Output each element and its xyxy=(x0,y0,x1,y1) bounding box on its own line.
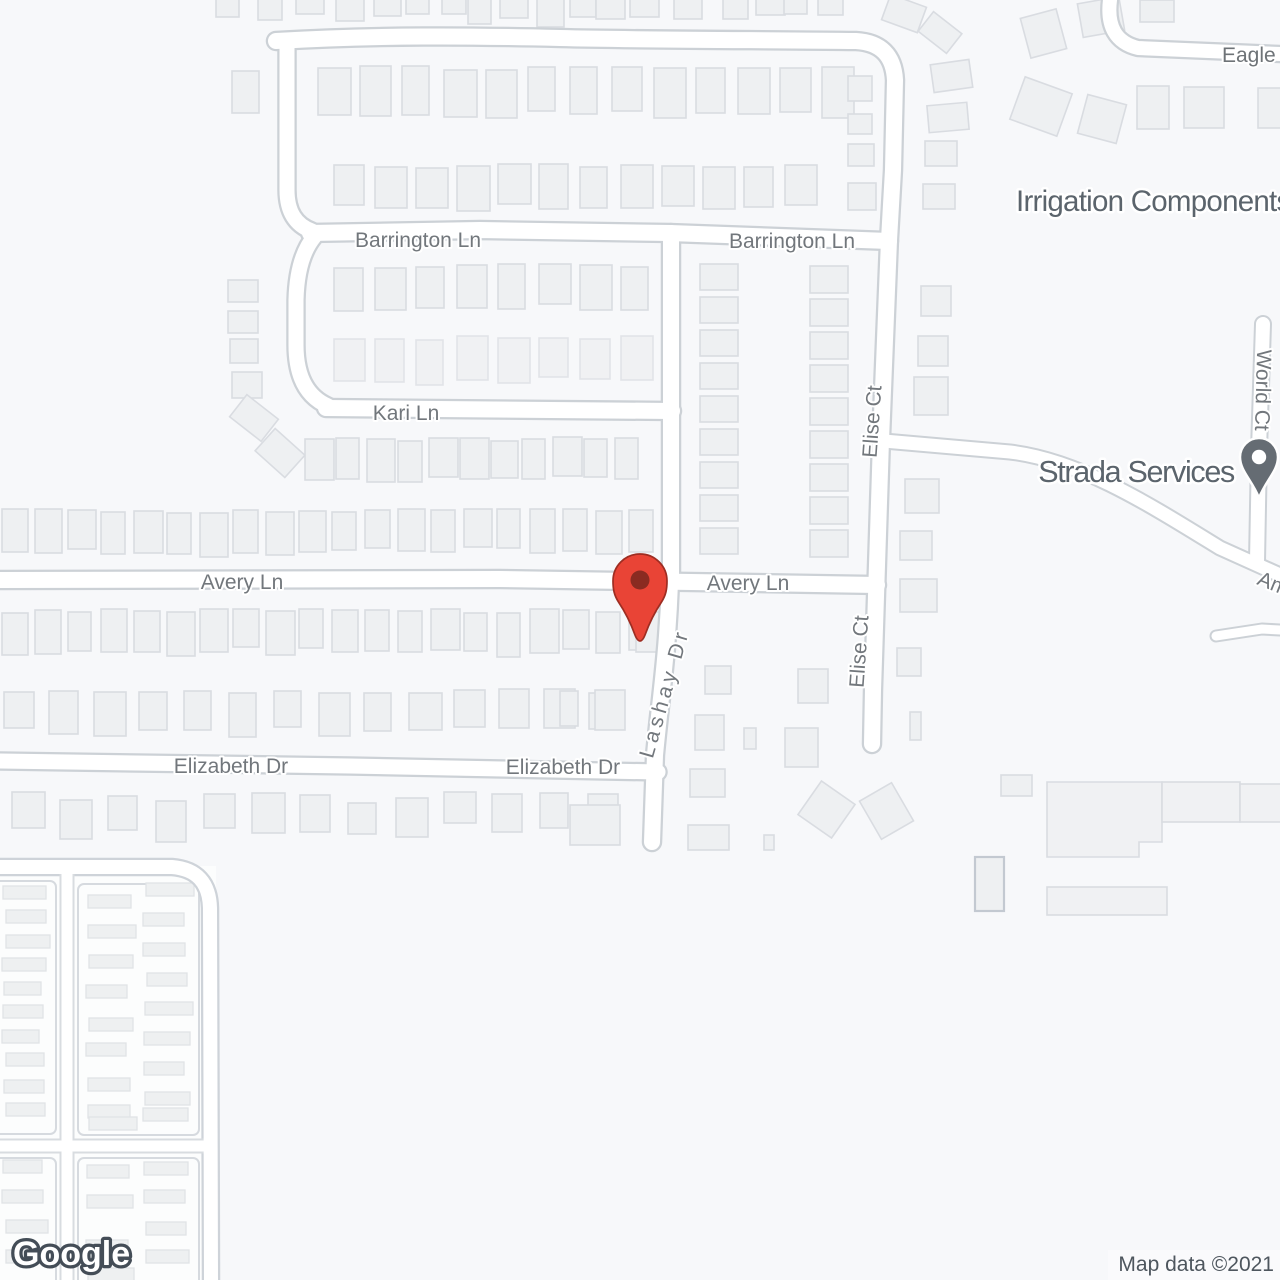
svg-text:Avery Ln: Avery Ln xyxy=(201,571,284,594)
svg-text:Elizabeth Dr: Elizabeth Dr xyxy=(506,756,620,779)
svg-text:Eagle: Eagle xyxy=(1222,44,1276,67)
svg-text:Barrington Ln: Barrington Ln xyxy=(355,229,481,252)
svg-text:World Ct: World Ct xyxy=(1250,349,1275,431)
svg-text:Avery Ln: Avery Ln xyxy=(707,572,790,595)
svg-text:Kari Ln: Kari Ln xyxy=(373,402,440,425)
svg-text:Irrigation Components: Irrigation Components xyxy=(1016,185,1280,218)
svg-text:Elizabeth Dr: Elizabeth Dr xyxy=(174,755,288,778)
svg-text:Google: Google xyxy=(13,1235,130,1273)
svg-text:Map data ©2021: Map data ©2021 xyxy=(1118,1253,1274,1276)
svg-text:Barrington Ln: Barrington Ln xyxy=(729,230,855,253)
svg-text:Strada Services: Strada Services xyxy=(1038,455,1235,489)
